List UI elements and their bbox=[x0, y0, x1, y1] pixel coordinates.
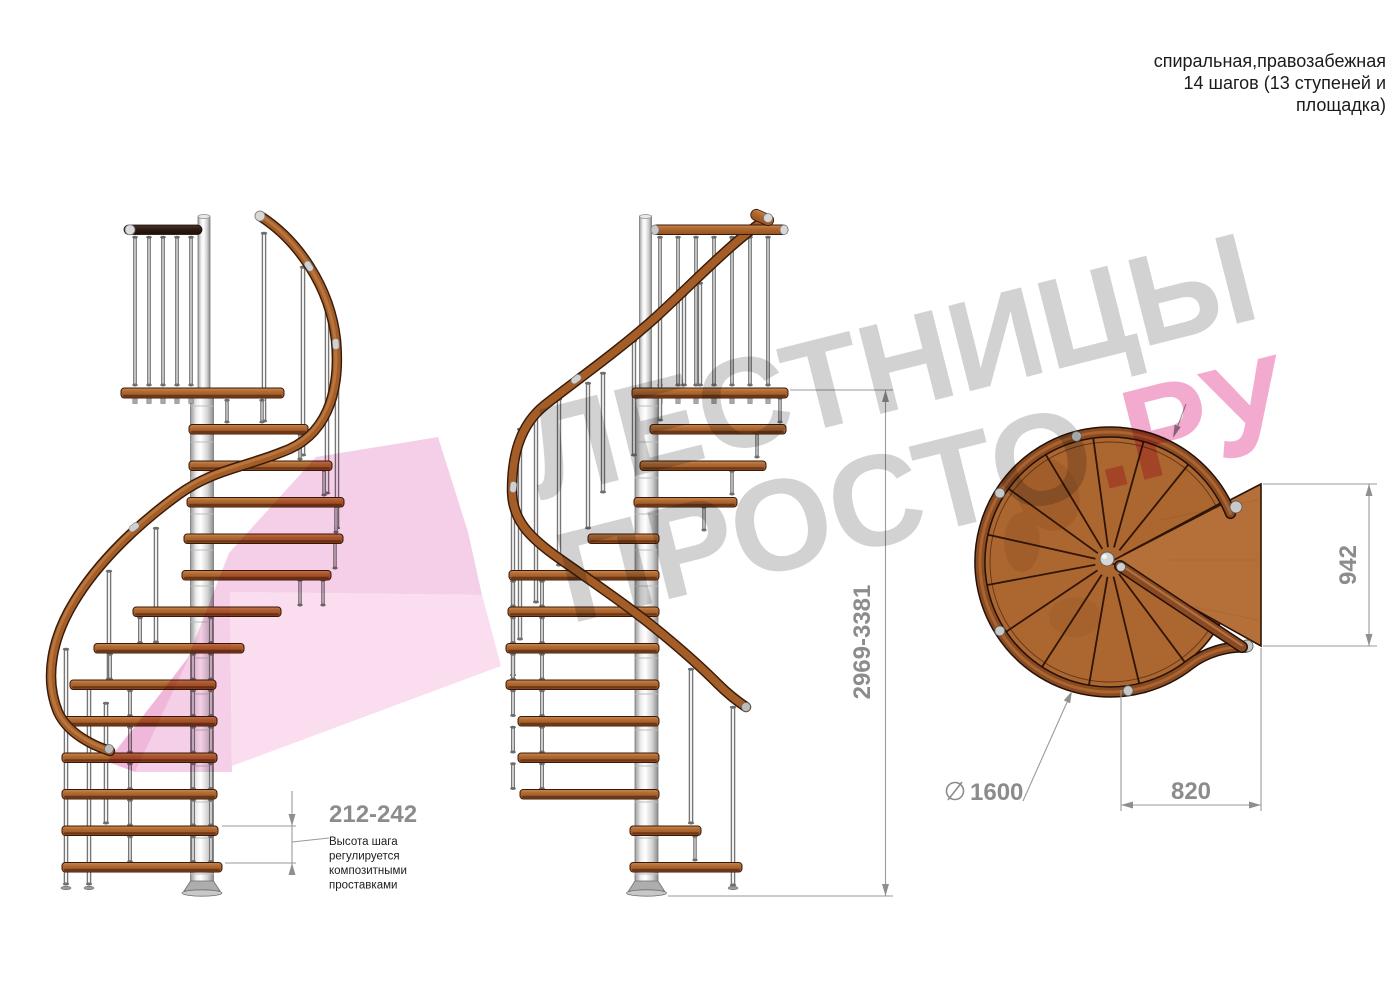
svg-text:спиральная,правозабежная: спиральная,правозабежная bbox=[1154, 51, 1386, 71]
svg-text:14 шагов (13 ступеней и: 14 шагов (13 ступеней и bbox=[1184, 73, 1387, 93]
svg-text:площадка): площадка) bbox=[1296, 95, 1386, 115]
svg-text:2969-3381: 2969-3381 bbox=[849, 585, 876, 700]
svg-text:942: 942 bbox=[1335, 545, 1362, 585]
svg-text:1600: 1600 bbox=[970, 779, 1023, 806]
svg-text:212-242: 212-242 bbox=[329, 801, 417, 828]
svg-text:820: 820 bbox=[1171, 778, 1211, 805]
